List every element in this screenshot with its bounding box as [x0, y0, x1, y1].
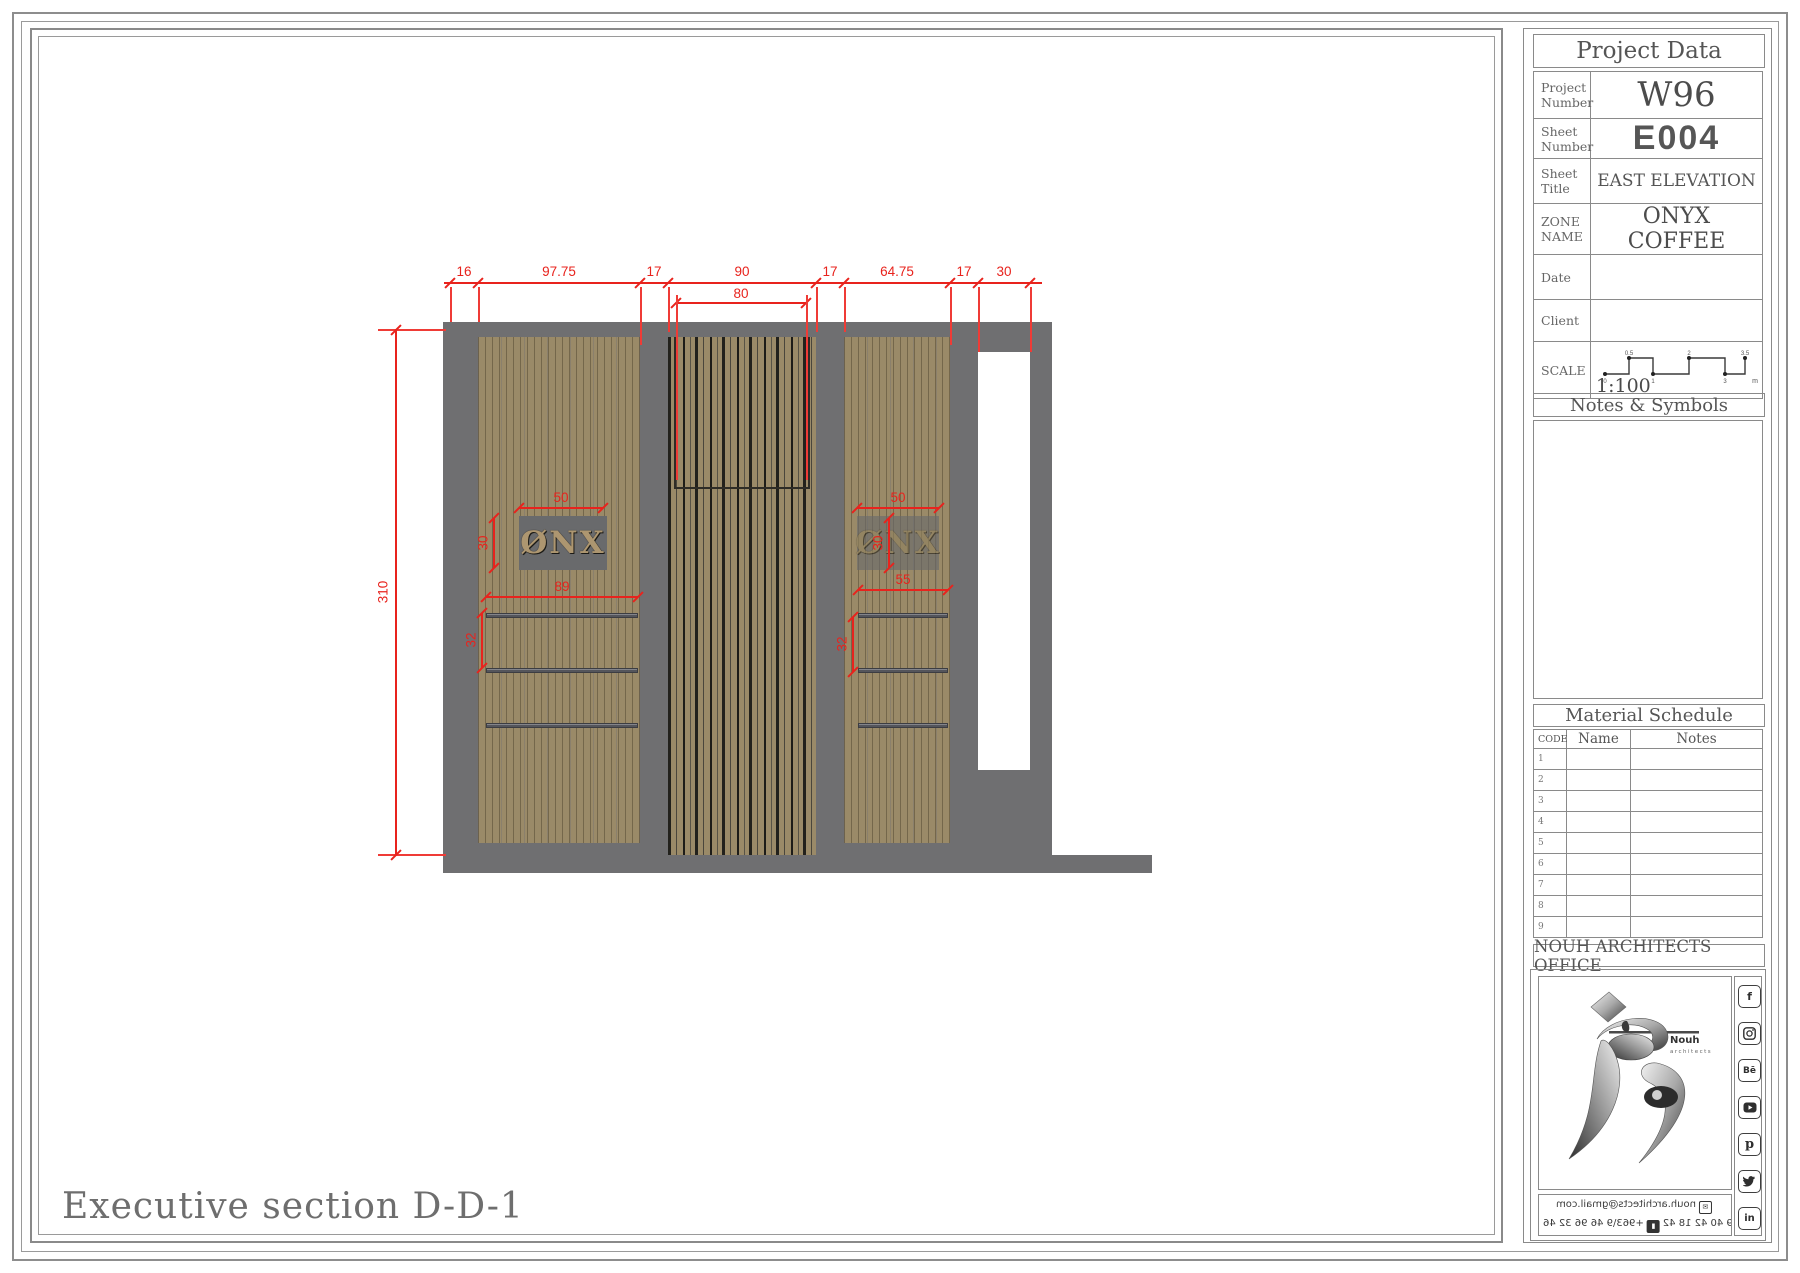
- dim-ext: [378, 329, 446, 331]
- dim-ext: [450, 287, 452, 322]
- dim-line-80: [676, 302, 806, 304]
- svg-text:3: 3: [1723, 379, 1727, 385]
- center-counter-outline: [674, 337, 810, 489]
- dim-label: 310: [376, 581, 391, 604]
- date-value: [1591, 255, 1763, 300]
- dim-label: 55: [895, 572, 910, 587]
- shelf-left-2: [486, 668, 638, 673]
- title-block: Project Data Project Number W96 Sheet Nu…: [1523, 28, 1772, 1243]
- dim-line-top: [444, 282, 1042, 284]
- dim-ext: [676, 295, 678, 480]
- dim-ext: [668, 287, 670, 332]
- project-data-header: Project Data: [1533, 34, 1765, 68]
- email-icon: ✉: [1698, 1201, 1711, 1214]
- col-notes: Notes: [1631, 730, 1763, 749]
- office-email: nouh.architects@gmail.com: [1556, 1199, 1696, 1210]
- office-phone-line: ▯+963\9 40 42 18 42▮+963\9 46 96 32 46: [1543, 1218, 1727, 1233]
- dim-line-shelf-left: [486, 596, 638, 598]
- schedule-row-code: 8: [1534, 896, 1567, 917]
- dim-line-height: [395, 330, 397, 855]
- sheet-number-label: Sheet Number: [1534, 119, 1591, 159]
- client-value: [1591, 300, 1763, 342]
- project-number-value: W96: [1591, 72, 1763, 119]
- door-opening: [978, 352, 1030, 770]
- onyx-sign-left: ØNX: [519, 516, 607, 570]
- schedule-row-code: 2: [1534, 770, 1567, 791]
- shelf-left-1: [486, 613, 638, 618]
- onyx-sign-right-text: ØNX: [855, 525, 940, 561]
- dim-label: 50: [890, 490, 905, 505]
- dim-label: 16: [456, 264, 471, 279]
- dim-ext: [478, 287, 480, 322]
- schedule-row-code: 9: [1534, 917, 1567, 938]
- dim-ext: [978, 287, 980, 352]
- dim-label: 17: [822, 264, 837, 279]
- svg-text:architects: architects: [1670, 1049, 1712, 1055]
- office-logo: Nouh architects: [1539, 977, 1732, 1190]
- dim-label: 64.75: [880, 264, 914, 279]
- schedule-row-code: 7: [1534, 875, 1567, 896]
- dim-ext: [1030, 287, 1032, 352]
- date-label: Date: [1534, 255, 1591, 300]
- col-code: CODE: [1534, 730, 1567, 749]
- dim-label: 30: [476, 535, 491, 550]
- youtube-icon: [1738, 1096, 1761, 1119]
- dim-line-sign-right-h: [888, 518, 890, 568]
- schedule-row-code: 3: [1534, 791, 1567, 812]
- shelf-left-3: [486, 723, 638, 728]
- dim-line-gap-right: [852, 617, 854, 672]
- sheet-page: ØNX ØNX 16 97.75 17 90 17 64.75 17 30 80…: [0, 0, 1800, 1273]
- schedule-row-code: 6: [1534, 854, 1567, 875]
- shelf-right-2: [858, 668, 948, 673]
- dim-label: 30: [871, 535, 886, 550]
- dim-line-sign-right-w: [857, 507, 939, 509]
- material-schedule-table: CODE Name Notes 1 2 3 4 5 6 7 8 9: [1533, 729, 1763, 938]
- svg-text:1: 1: [1651, 379, 1655, 385]
- dim-line-sign-left-w: [519, 507, 603, 509]
- dim-label: 90: [734, 264, 749, 279]
- scale-cell: 0.5 2 3.5 0 1 3 m 1:100: [1591, 342, 1763, 399]
- office-name-header: NOUH ARCHITECTS OFFICE: [1533, 944, 1765, 967]
- dim-label: 30: [996, 264, 1011, 279]
- office-email-line: ✉nouh.architects@gmail.com: [1543, 1199, 1727, 1214]
- dim-label: 80: [733, 286, 748, 301]
- schedule-row-code: 4: [1534, 812, 1567, 833]
- sheet-title-value: EAST ELEVATION: [1591, 159, 1763, 204]
- shelf-right-1: [858, 613, 948, 618]
- schedule-row-code: 5: [1534, 833, 1567, 854]
- instagram-icon: [1738, 1022, 1761, 1045]
- office-logo-box: Nouh architects: [1538, 976, 1732, 1190]
- material-schedule-header: Material Schedule: [1533, 704, 1765, 727]
- office-phone1: +963\9 40 42 18 42: [1663, 1218, 1732, 1229]
- office-contact-box: ✉nouh.architects@gmail.com ▯+963\9 40 42…: [1538, 1194, 1732, 1236]
- social-strip: f Bē p in: [1734, 976, 1762, 1236]
- sheet-title-label: Sheet Title: [1534, 159, 1591, 204]
- office-logo-block: Nouh architects ✉nouh.architects@gmail.c…: [1530, 969, 1766, 1241]
- scale-label: SCALE: [1534, 342, 1591, 399]
- notes-symbols-box: [1533, 420, 1763, 699]
- dim-label: 17: [646, 264, 661, 279]
- zone-name-value: ONYX COFFEE: [1591, 204, 1763, 255]
- notes-symbols-header: Notes & Symbols: [1533, 393, 1765, 417]
- onyx-sign-right: ØNX: [857, 516, 939, 570]
- dim-ext: [378, 854, 446, 856]
- client-label: Client: [1534, 300, 1591, 342]
- svg-text:0.5: 0.5: [1625, 351, 1634, 357]
- schedule-row-code: 1: [1534, 749, 1567, 770]
- dim-label: 17: [956, 264, 971, 279]
- onyx-sign-left-text: ØNX: [520, 525, 605, 561]
- svg-text:3.5: 3.5: [1741, 351, 1750, 357]
- svg-text:m: m: [1752, 378, 1758, 385]
- facebook-icon: f: [1738, 985, 1761, 1008]
- linkedin-icon: in: [1738, 1207, 1761, 1230]
- svg-text:2: 2: [1687, 351, 1691, 357]
- drawing-title: Executive section D-D-1: [62, 1186, 524, 1227]
- dim-ext: [844, 287, 846, 332]
- project-data-table: Project Number W96 Sheet Number E004 She…: [1533, 71, 1763, 399]
- dim-ext: [950, 287, 952, 345]
- shelf-right-3: [858, 723, 948, 728]
- behance-icon: Bē: [1738, 1059, 1761, 1082]
- dim-ext: [806, 295, 808, 480]
- dim-line-gap-left: [481, 613, 483, 668]
- dim-line-shelf-right: [858, 589, 948, 591]
- twitter-icon: [1738, 1170, 1761, 1193]
- zone-name-label: ZONE NAME: [1534, 204, 1591, 255]
- phone-icon: ▮: [1647, 1220, 1660, 1233]
- dim-label: 50: [553, 490, 568, 505]
- floor-slab: [443, 855, 1152, 873]
- pinterest-icon: p: [1738, 1133, 1761, 1156]
- office-phone2: +963\9 46 96 32 46: [1543, 1218, 1644, 1229]
- dim-line-sign-left-h: [493, 518, 495, 568]
- dim-ext: [640, 287, 642, 345]
- sheet-number-value: E004: [1591, 119, 1763, 159]
- dim-label: 97.75: [542, 264, 576, 279]
- dim-ext: [816, 287, 818, 332]
- dim-label: 32: [835, 636, 850, 651]
- project-number-label: Project Number: [1534, 72, 1591, 119]
- col-name: Name: [1567, 730, 1631, 749]
- dim-label: 89: [554, 579, 569, 594]
- dim-label: 32: [464, 632, 479, 647]
- svg-text:Nouh: Nouh: [1670, 1035, 1699, 1046]
